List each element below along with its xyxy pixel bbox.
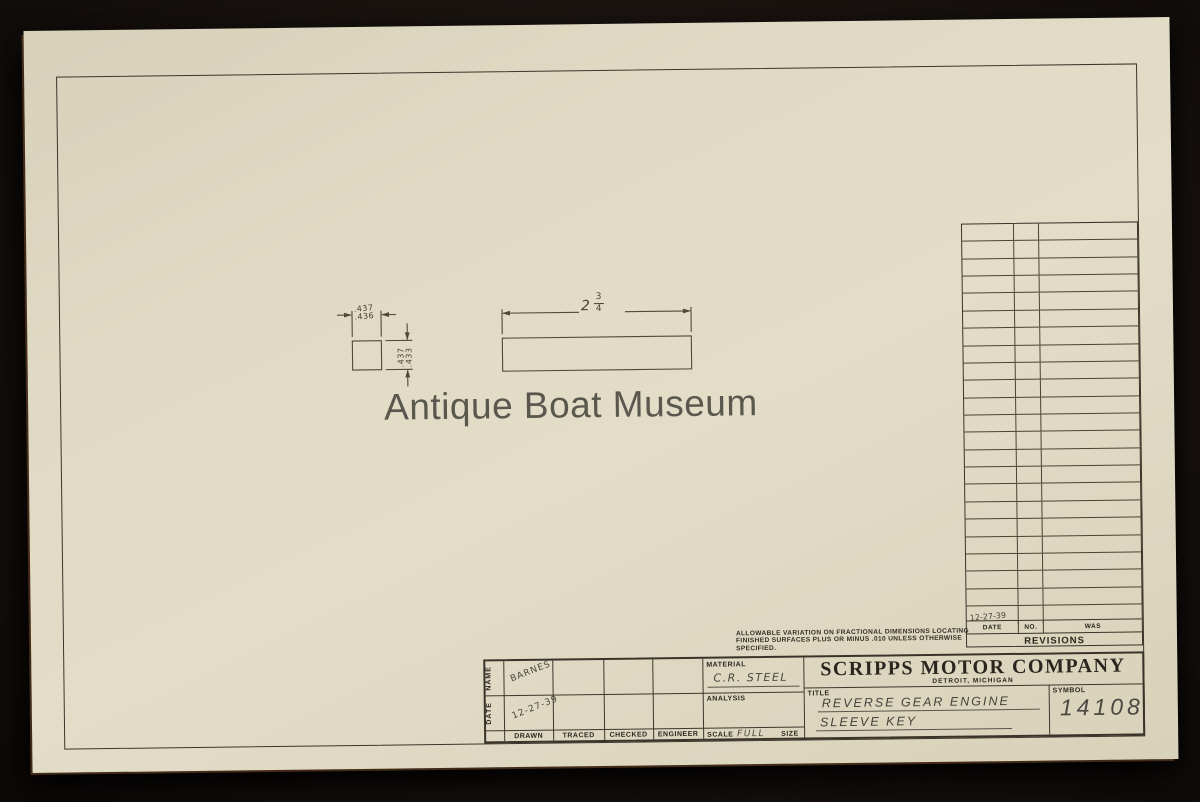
- revision-row: [963, 292, 1138, 311]
- revisions-table: 12-27-39 DATE NO. WAS REVISIONS: [961, 221, 1143, 647]
- revision-row: [966, 587, 1141, 606]
- revision-row: [963, 327, 1138, 346]
- revisions-heading: REVISIONS: [967, 633, 1142, 647]
- revision-row: [965, 465, 1140, 485]
- traced-label: TRACED: [553, 732, 604, 740]
- height-dimension-text: .437 .433: [397, 337, 413, 377]
- revision-row: [964, 379, 1139, 398]
- scan-background: { "watermark": "Antique Boat Museum", "c…: [0, 0, 1200, 802]
- revision-row: [965, 448, 1140, 467]
- revision-row: [964, 396, 1139, 415]
- title-block: NAME DATE BARNES 12-27-39 DRAWN TRACED C…: [483, 651, 1145, 743]
- revisions-empty-rows: [962, 222, 1142, 606]
- revision-row: [965, 483, 1140, 502]
- material-value: C.R. STEEL: [713, 671, 788, 685]
- revision-row: [964, 431, 1139, 450]
- side-view-rectangle: [502, 336, 691, 371]
- dimension-arrowheads: [344, 308, 692, 378]
- revision-row: [966, 570, 1141, 589]
- part-views-drawing: [327, 288, 728, 393]
- length-dimension-text: 234: [581, 295, 604, 316]
- size-label: SIZE: [781, 731, 799, 738]
- revisions-col-was: WAS: [1044, 619, 1142, 633]
- drawing-number: 14108: [1060, 693, 1144, 721]
- drawing-title-line2: SLEEVE KEY: [820, 714, 917, 729]
- revision-row: [962, 240, 1137, 259]
- drawing-sheet: Antique Boat Museum: [24, 17, 1179, 773]
- drawing-title-line1: REVERSE GEAR ENGINE: [822, 694, 1010, 710]
- engineer-label: ENGINEER: [653, 731, 703, 739]
- scale-value: FULL: [737, 729, 765, 739]
- revision-row: [962, 222, 1137, 241]
- revision-row: [963, 275, 1138, 295]
- material-label: MATERIAL: [706, 661, 746, 668]
- drawn-by-name: BARNES: [509, 659, 552, 684]
- revisions-col-no: NO.: [1019, 621, 1044, 634]
- revision-row: [965, 500, 1140, 519]
- revision-row: [963, 344, 1138, 364]
- checked-label: CHECKED: [604, 731, 653, 739]
- revision-row: [966, 535, 1141, 555]
- tolerance-note: ALLOWABLE VARIATION ON FRACTIONAL DIMENS…: [736, 627, 976, 652]
- revision-row: [964, 413, 1139, 433]
- date-row-label: DATE: [486, 696, 504, 730]
- revision-row: [964, 361, 1139, 380]
- drawn-label: DRAWN: [504, 733, 553, 741]
- width-dimension-text: .437 .436: [342, 303, 385, 322]
- revision-row: [962, 257, 1137, 276]
- end-view-square: [352, 341, 381, 370]
- revisions-col-date: DATE: [967, 621, 1019, 635]
- revision-row: [966, 552, 1141, 571]
- revision-row: [966, 518, 1141, 537]
- scale-label: SCALE: [707, 731, 733, 738]
- analysis-label: ANALYSIS: [707, 695, 746, 702]
- name-row-label: NAME: [485, 661, 503, 695]
- revision-row: [963, 309, 1138, 328]
